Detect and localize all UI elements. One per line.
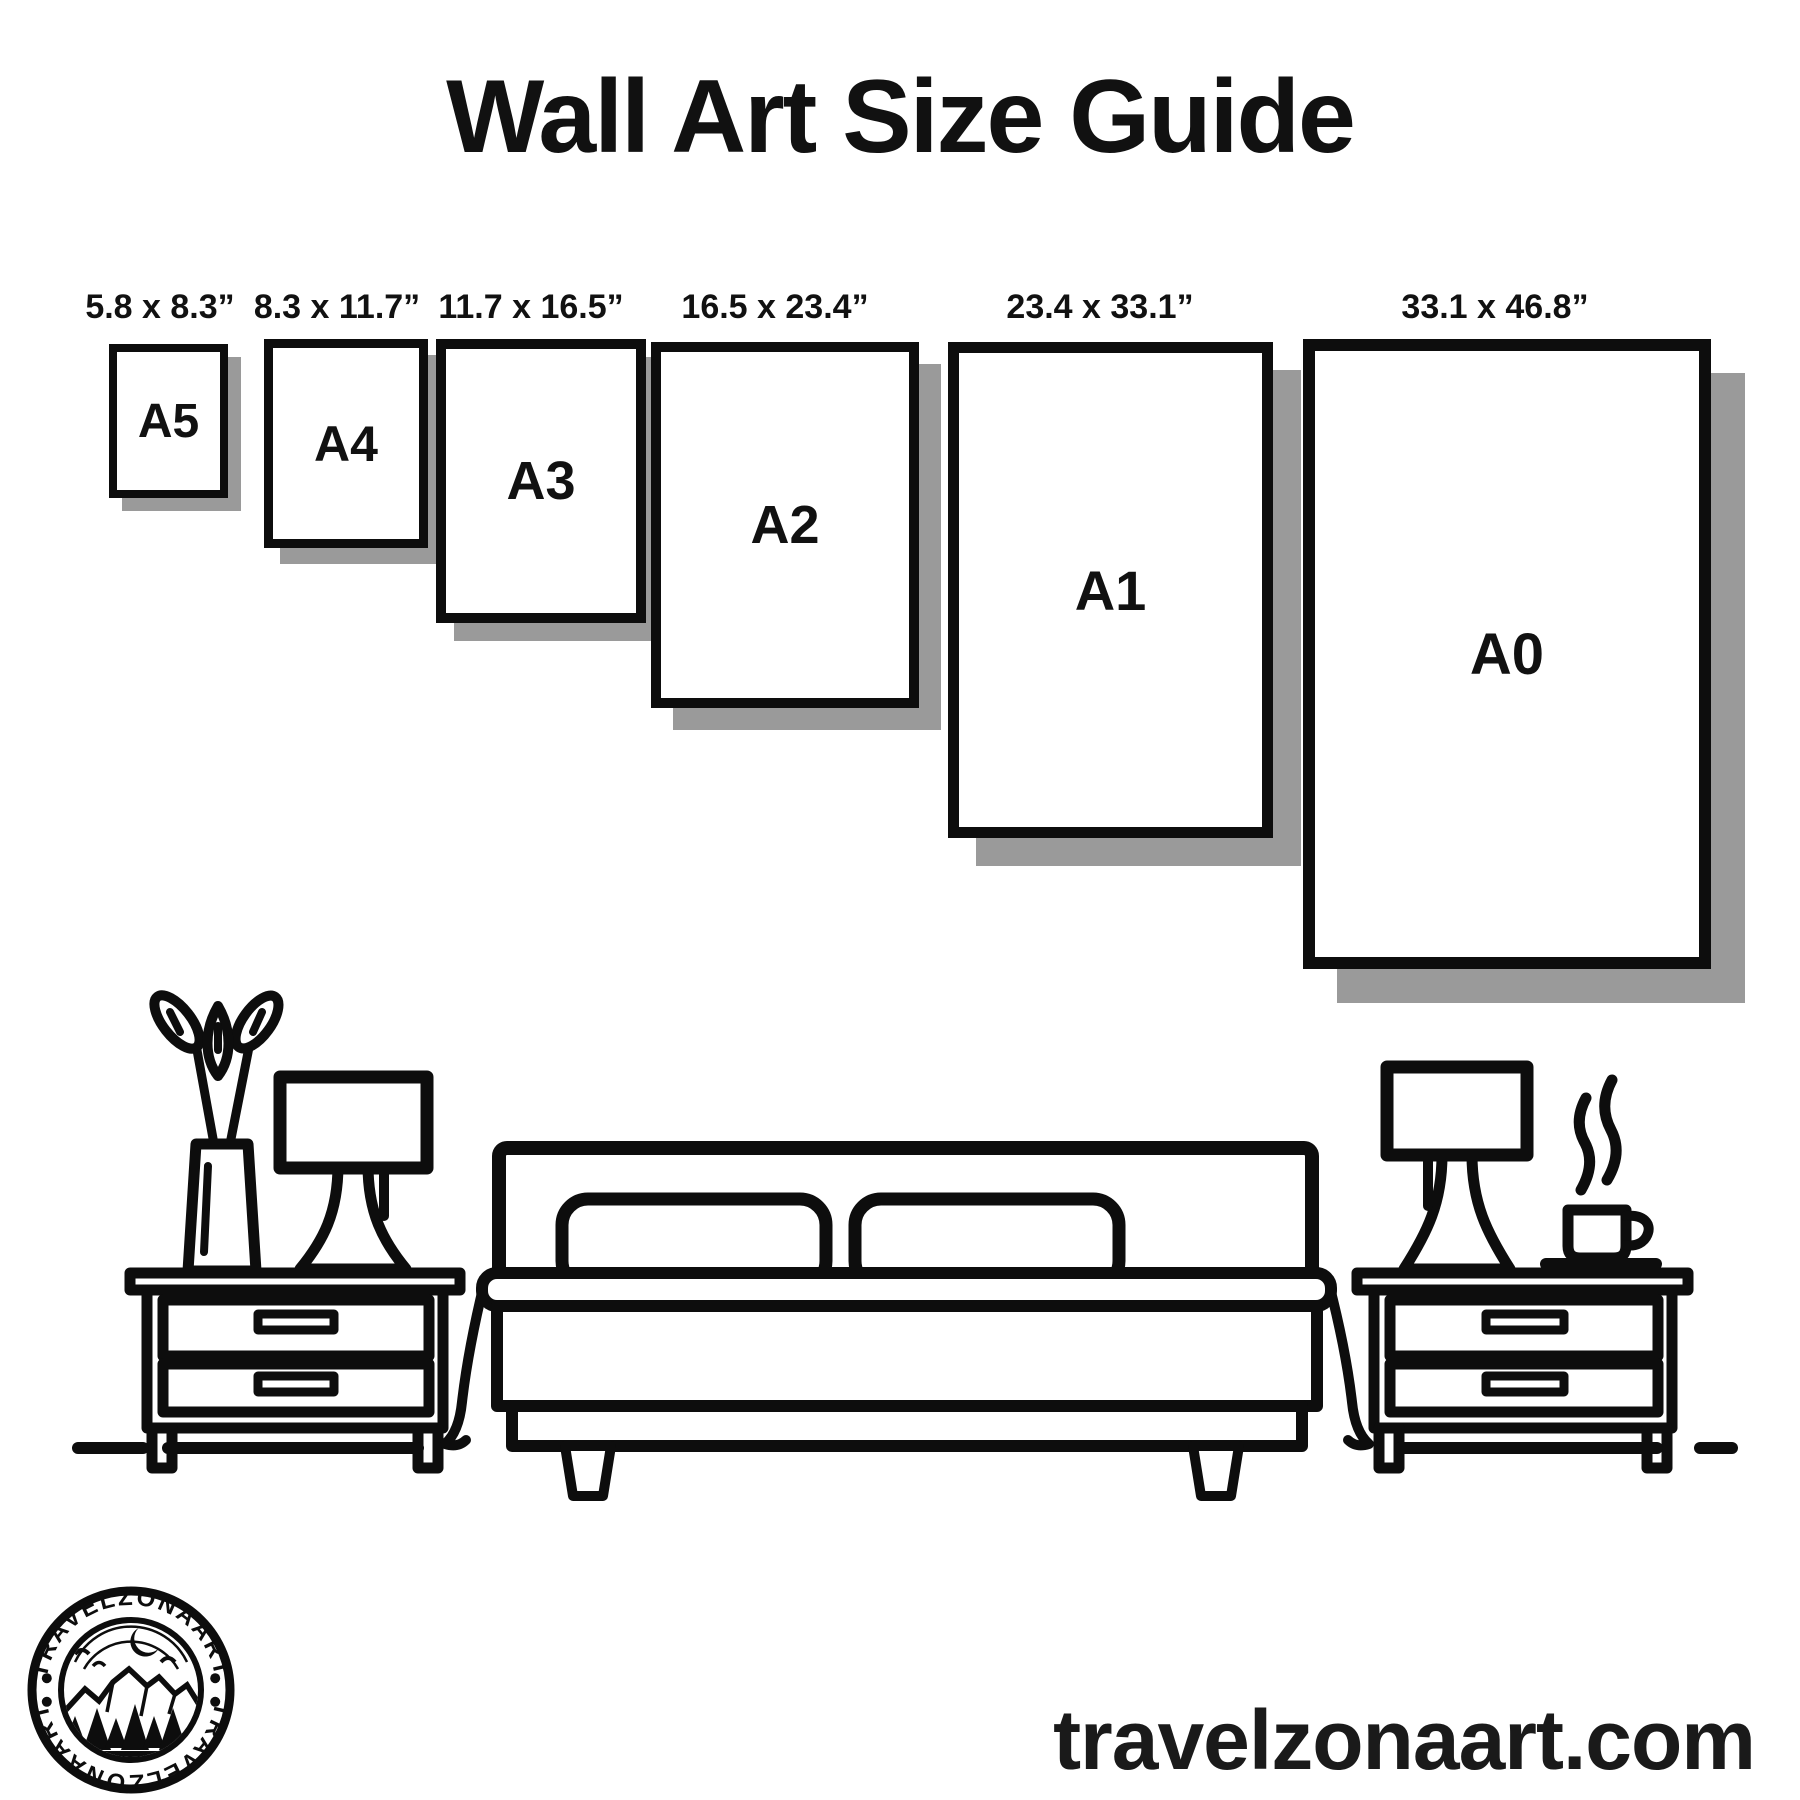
page-title: Wall Art Size Guide: [0, 58, 1800, 177]
table-lamp-right-icon: [1387, 1067, 1527, 1269]
dimension-label-a1: 23.4 x 33.1”: [950, 288, 1250, 332]
size-name-a1: A1: [1075, 558, 1147, 623]
bed-icon: [445, 1148, 1369, 1496]
nightstand-left-icon: [130, 1273, 460, 1468]
frame-a5: A5: [109, 344, 228, 498]
frame-a2: A2: [651, 342, 919, 708]
frame-a3: A3: [436, 339, 646, 623]
size-name-a4: A4: [314, 415, 378, 473]
size-name-a0: A0: [1470, 621, 1544, 688]
dimension-label-a0: 33.1 x 46.8”: [1345, 288, 1645, 332]
brand-logo: TRAVELZONAART TRAVELZONAART: [23, 1582, 239, 1798]
frame-a4: A4: [264, 339, 428, 548]
size-name-a3: A3: [506, 450, 575, 512]
frame-a0: A0: [1303, 339, 1711, 969]
size-name-a2: A2: [750, 494, 819, 556]
website-url: travelzonaart.com: [1053, 1692, 1755, 1789]
frame-a1: A1: [948, 342, 1273, 838]
nightstand-right-icon: [1357, 1273, 1688, 1468]
coffee-cup-icon: [1546, 1080, 1656, 1264]
plant-vase-icon: [146, 988, 286, 1271]
bedroom-scene-illustration: [0, 970, 1800, 1530]
size-name-a5: A5: [138, 394, 199, 449]
table-lamp-left-icon: [280, 1077, 427, 1269]
dimension-label-a2: 16.5 x 23.4”: [625, 288, 925, 332]
